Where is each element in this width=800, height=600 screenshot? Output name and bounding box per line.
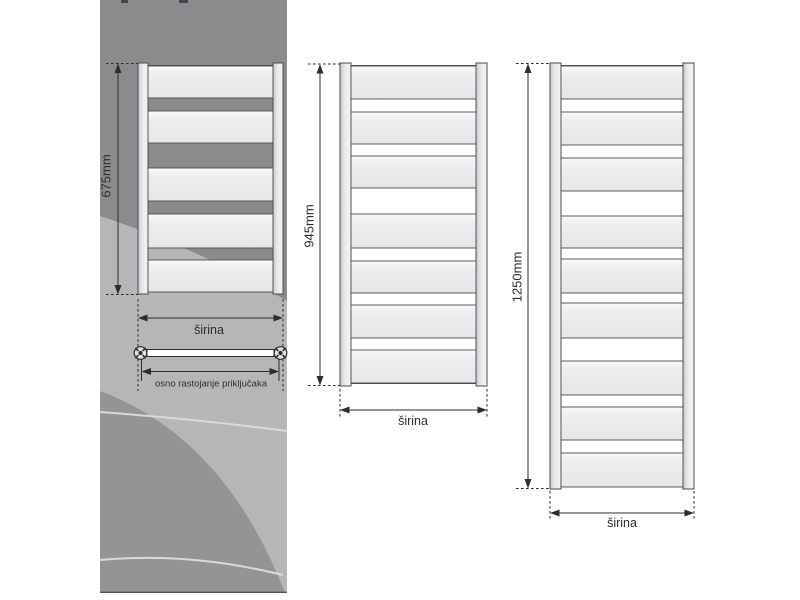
width-label-2: širina — [398, 415, 428, 428]
radiator-panel — [561, 216, 683, 248]
connection-pipe — [147, 350, 274, 357]
connection-spacing-label: osno rastojanje priključaka — [155, 379, 267, 389]
radiator-rail-left — [550, 63, 561, 489]
radiator-panel — [561, 112, 683, 145]
arrowhead — [317, 376, 324, 386]
radiator-panel — [148, 66, 273, 98]
radiator-panel — [148, 260, 273, 292]
radiator-rail-right — [273, 63, 283, 294]
width-label-1: širina — [194, 324, 224, 337]
radiator-panel — [148, 168, 273, 201]
valve-center — [278, 351, 282, 355]
radiator-panel — [148, 111, 273, 143]
radiator-panel — [561, 158, 683, 191]
radiator-panel — [561, 407, 683, 440]
radiator-panel — [351, 214, 476, 248]
arrowhead — [317, 64, 324, 74]
arrowhead — [550, 510, 560, 517]
radiator-rail-right — [683, 63, 694, 489]
cropped-text-artifact — [179, 0, 188, 3]
arrowhead — [478, 407, 488, 414]
radiator-panel — [351, 305, 476, 338]
radiator-panel — [561, 303, 683, 338]
height-label-945: 945mm — [303, 204, 316, 247]
height-label-1250: 1250mm — [511, 252, 524, 303]
radiator-panel — [351, 261, 476, 293]
arrowhead — [525, 479, 532, 489]
radiator-panel — [351, 66, 476, 99]
valve-center — [138, 351, 142, 355]
radiator-panel — [351, 156, 476, 188]
arrowhead — [685, 510, 695, 517]
diagram-page: 675mm 945mm 1250mm širina širina širina … — [0, 0, 800, 600]
height-label-675: 675mm — [100, 154, 113, 197]
cropped-text-artifact — [121, 0, 128, 3]
radiator-rail-left — [340, 63, 351, 386]
arrowhead — [340, 407, 350, 414]
radiator-panel — [561, 66, 683, 99]
radiator-panel — [351, 350, 476, 383]
radiator-rail-right — [476, 63, 487, 386]
width-label-3: širina — [607, 517, 637, 530]
radiator-panel — [561, 453, 683, 487]
arrowhead — [525, 64, 532, 74]
radiator-dimension-diagram — [0, 0, 800, 600]
radiator-rail-left — [138, 63, 148, 294]
radiator-panel — [561, 259, 683, 293]
radiator-panel — [148, 214, 273, 248]
radiator-panel — [561, 361, 683, 395]
radiator-panel — [351, 112, 476, 144]
